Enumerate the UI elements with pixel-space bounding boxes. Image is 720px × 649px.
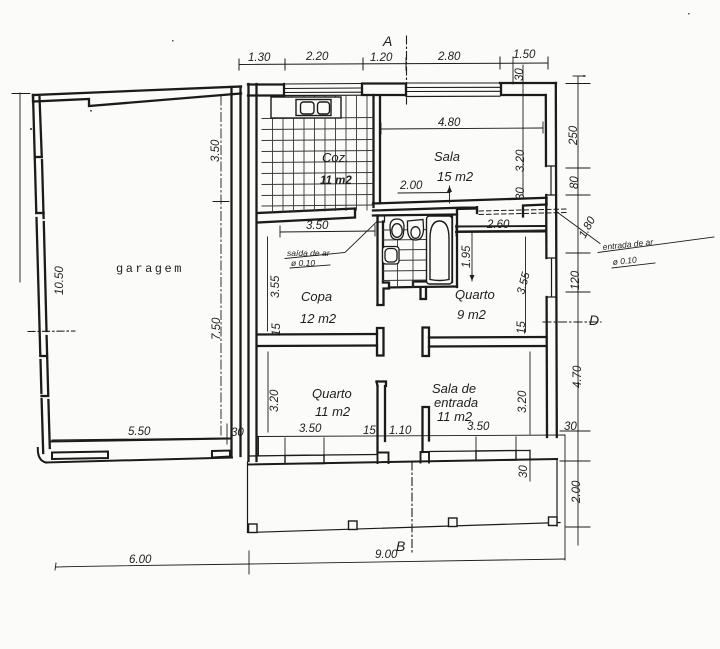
svg-text:30: 30 xyxy=(514,68,526,81)
svg-text:7.50: 7.50 xyxy=(211,317,223,340)
svg-text:2.20: 2.20 xyxy=(305,51,329,63)
svg-text:Quarto: Quarto xyxy=(312,386,352,401)
svg-text:1.20: 1.20 xyxy=(370,52,393,64)
svg-text:12 m2: 12 m2 xyxy=(300,311,337,326)
svg-text:9 m2: 9 m2 xyxy=(457,307,487,322)
svg-text:Quarto: Quarto xyxy=(455,287,495,302)
svg-text:Sala: Sala xyxy=(434,149,460,164)
svg-text:15 m2: 15 m2 xyxy=(437,169,474,184)
svg-text:3.50: 3.50 xyxy=(299,423,322,435)
svg-text:1.95: 1.95 xyxy=(461,245,473,268)
svg-text:1.10: 1.10 xyxy=(389,425,412,437)
svg-text:ø 0.10: ø 0.10 xyxy=(291,258,315,268)
svg-text:Sala de: Sala de xyxy=(432,381,476,396)
svg-text:3.55: 3.55 xyxy=(270,275,282,298)
svg-text:3.20: 3.20 xyxy=(517,390,529,413)
svg-text:Copa: Copa xyxy=(301,289,332,304)
svg-text:2.80: 2.80 xyxy=(437,51,461,63)
svg-text:4.70: 4.70 xyxy=(572,365,584,388)
svg-text:B: B xyxy=(396,538,405,554)
svg-text:11 m2: 11 m2 xyxy=(315,404,351,419)
svg-text:3.50: 3.50 xyxy=(306,220,329,232)
svg-text:D: D xyxy=(589,312,599,328)
svg-text:3.50: 3.50 xyxy=(210,139,222,162)
svg-text:11 m2: 11 m2 xyxy=(320,175,352,187)
svg-text:15: 15 xyxy=(363,425,376,437)
svg-text:9.00: 9.00 xyxy=(375,549,398,561)
svg-text:saída de ar: saída de ar xyxy=(287,248,331,258)
svg-text:10.50: 10.50 xyxy=(54,266,66,295)
svg-text:1.30: 1.30 xyxy=(248,52,271,64)
svg-text:4.80: 4.80 xyxy=(438,117,461,129)
svg-text:30: 30 xyxy=(518,465,530,478)
svg-text:2.60: 2.60 xyxy=(486,219,510,231)
svg-text:1.50: 1.50 xyxy=(513,49,536,61)
svg-text:30: 30 xyxy=(564,421,577,433)
svg-text:Coz.: Coz. xyxy=(322,150,349,165)
svg-text:3.20: 3.20 xyxy=(515,149,527,172)
svg-text:15: 15 xyxy=(516,321,528,334)
svg-text:120: 120 xyxy=(570,270,582,290)
svg-text:3.50: 3.50 xyxy=(467,421,490,433)
svg-text:5.50: 5.50 xyxy=(128,426,151,438)
svg-text:30: 30 xyxy=(231,427,244,439)
svg-text:garagem: garagem xyxy=(116,262,184,276)
svg-text:3.20: 3.20 xyxy=(269,389,281,412)
svg-text:2.00: 2.00 xyxy=(571,480,583,504)
svg-text:80: 80 xyxy=(569,176,581,189)
svg-text:30: 30 xyxy=(515,187,527,200)
svg-text:A: A xyxy=(382,33,392,49)
svg-text:15: 15 xyxy=(271,323,283,336)
svg-text:entrada: entrada xyxy=(434,395,478,410)
svg-text:2.00: 2.00 xyxy=(399,180,423,192)
svg-text:250: 250 xyxy=(568,125,580,146)
svg-text:6.00: 6.00 xyxy=(129,554,152,566)
